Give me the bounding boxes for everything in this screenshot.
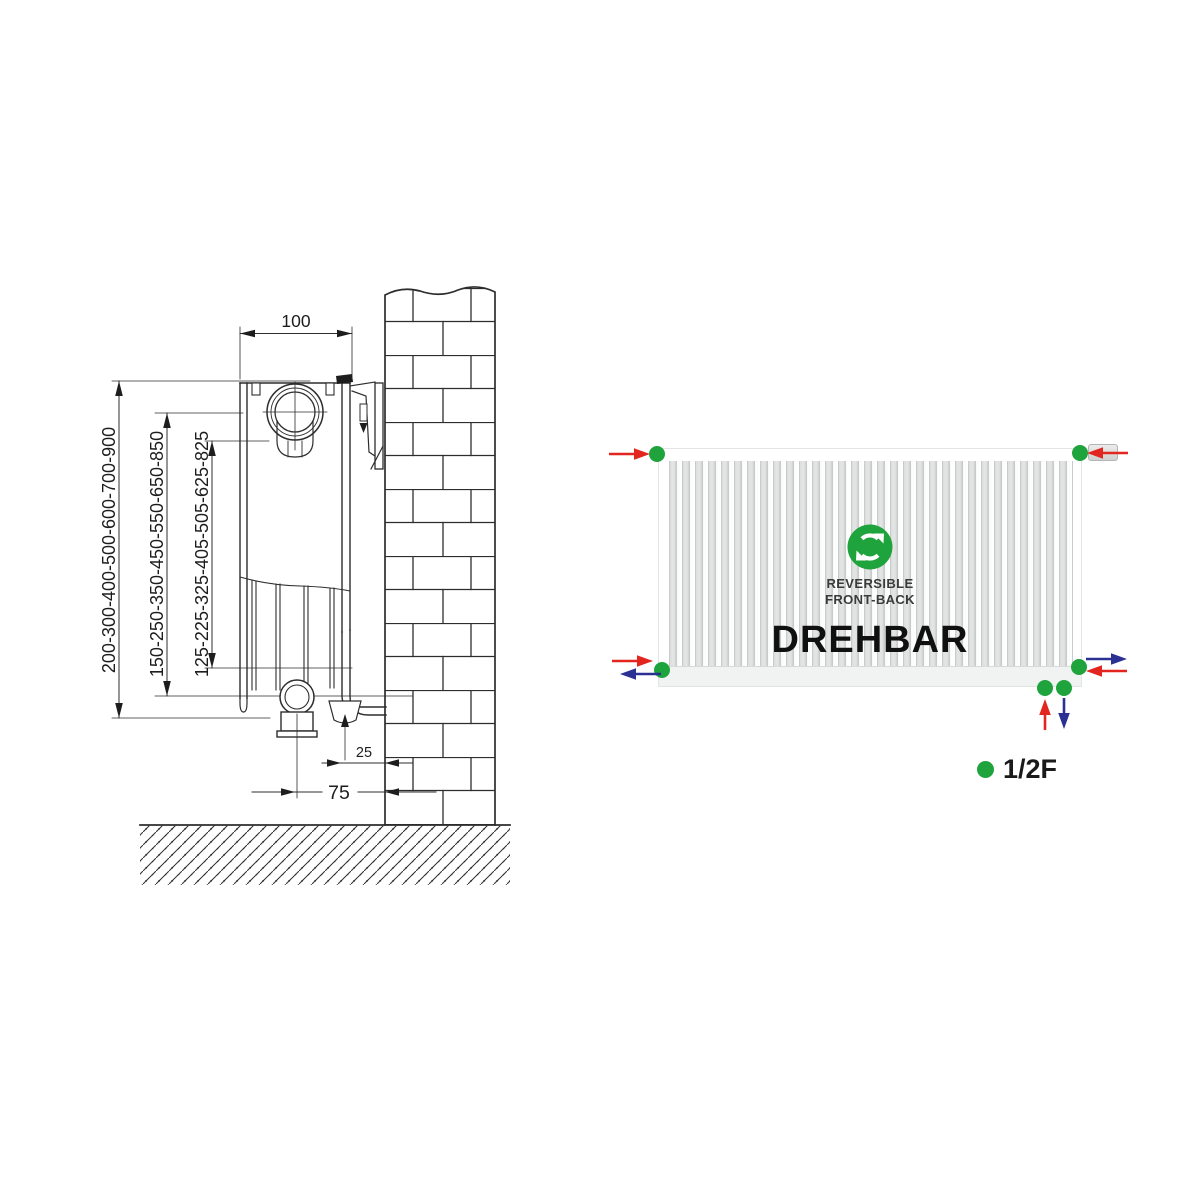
dimension-height-inner: 125-225-325-405-505-625-825 bbox=[192, 431, 352, 677]
legend: 1/2F bbox=[977, 756, 1057, 782]
height-range-inner-label: 125-225-325-405-505-625-825 bbox=[192, 431, 212, 677]
flow-arrow-bottom-left-red bbox=[611, 654, 653, 668]
height-range-outer-label: 200-300-400-500-600-700-900 bbox=[99, 427, 119, 673]
flow-arrow-top-left-red bbox=[608, 447, 650, 461]
installation-side-view: 100 25 75 200-300-400-500-600-700-900 bbox=[90, 280, 520, 900]
convector-fins bbox=[252, 581, 334, 690]
cycle-arrows-icon bbox=[846, 523, 894, 571]
wall-bracket bbox=[350, 382, 383, 469]
radiator-bottom-strip bbox=[659, 666, 1081, 686]
dimension-width-label: 100 bbox=[281, 311, 310, 331]
badge-line-1: REVERSIBLE bbox=[659, 576, 1081, 592]
dimension-floor-gap-label: 75 bbox=[328, 782, 350, 804]
flow-arrow-top-right-red bbox=[1087, 446, 1129, 460]
title-drehbar: DREHBAR bbox=[659, 621, 1081, 659]
flow-arrow-bottom-right-red bbox=[1086, 664, 1128, 678]
badge-line-2: FRONT-BACK bbox=[659, 592, 1081, 608]
flow-arrow-bottom-up-red bbox=[1038, 699, 1052, 731]
flow-arrow-bottom-down-blue bbox=[1057, 697, 1071, 729]
connection-dot-bottom-center-1 bbox=[1037, 680, 1053, 696]
pipe-elbow bbox=[329, 630, 386, 723]
radiator-front-view: REVERSIBLE FRONT-BACK DREHBAR bbox=[658, 448, 1082, 687]
legend-label: 1/2F bbox=[1003, 754, 1057, 785]
legend-green-dot-icon bbox=[977, 761, 994, 778]
flow-arrow-bottom-left-blue bbox=[620, 667, 662, 681]
height-range-middle-label: 150-250-350-450-550-650-850 bbox=[147, 431, 167, 677]
connection-dot-bottom-center-2 bbox=[1056, 680, 1072, 696]
radiator-section bbox=[240, 374, 353, 712]
dimension-width: 100 bbox=[240, 311, 352, 379]
dimension-wall-gap-label: 25 bbox=[356, 745, 372, 761]
brick-wall bbox=[385, 287, 495, 825]
reversible-badge: REVERSIBLE FRONT-BACK DREHBAR bbox=[659, 523, 1081, 659]
connection-dot-top-right bbox=[1072, 445, 1088, 461]
page: 100 25 75 200-300-400-500-600-700-900 bbox=[0, 0, 1200, 1200]
brick-wall-fill bbox=[385, 287, 495, 825]
connection-dot-top-left bbox=[649, 446, 665, 462]
bottom-valve bbox=[155, 680, 413, 798]
floor-hatch bbox=[140, 825, 510, 885]
